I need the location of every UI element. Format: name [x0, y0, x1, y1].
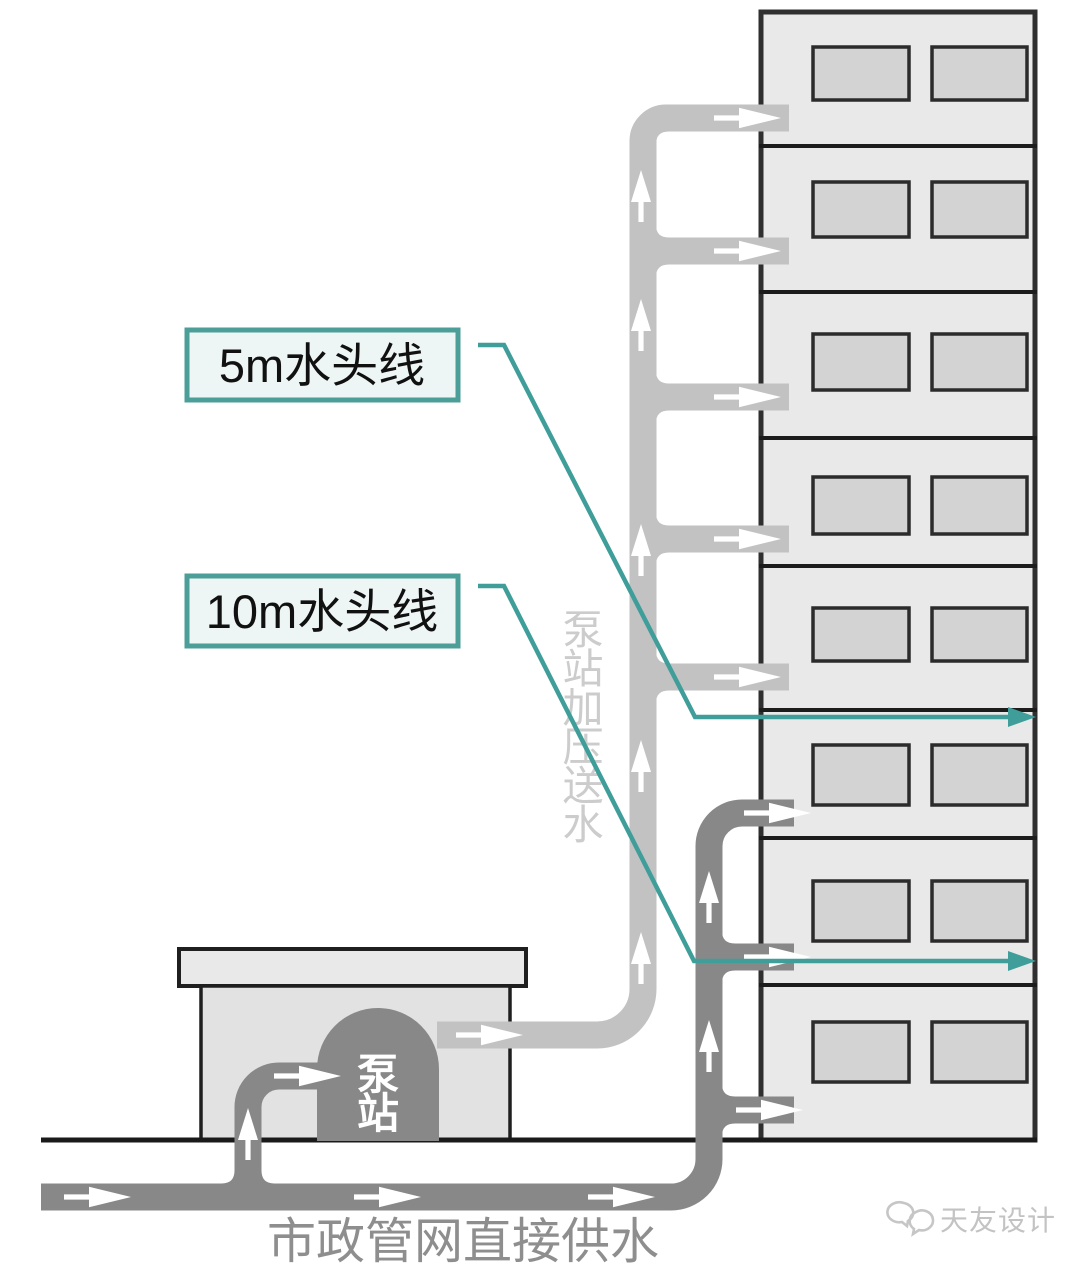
- svg-text:市政管网直接供水: 市政管网直接供水: [267, 1215, 659, 1266]
- svg-text:站: 站: [357, 1090, 399, 1137]
- svg-text:10m水头线: 10m水头线: [206, 585, 438, 638]
- svg-text:水: 水: [563, 802, 604, 848]
- svg-text:5m水头线: 5m水头线: [219, 339, 425, 392]
- svg-text:天友设计: 天友设计: [940, 1205, 1056, 1236]
